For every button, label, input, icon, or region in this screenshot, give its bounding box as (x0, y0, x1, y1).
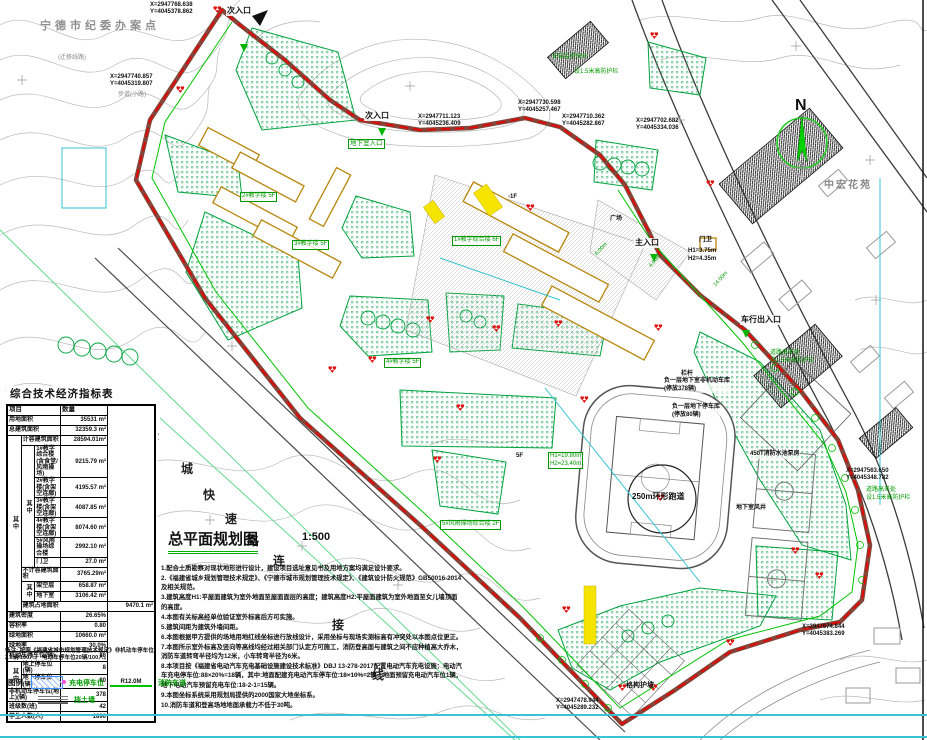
table-row-value: 658.87 m² (61, 581, 108, 591)
coordinate-6: X=2947702.682 Y=4045334.036 (636, 118, 679, 132)
main-entrance-label: 主入口 (634, 238, 660, 248)
table-row-value: 3765.29m² (61, 568, 108, 582)
building-label-3: 3#教学楼 5F (292, 240, 329, 250)
legend-caption: 图例 (8, 677, 23, 688)
vehicle-entrance-label: 车行出入口 (740, 315, 782, 325)
fire-tank-label: 450T消防水池泵房 (750, 451, 800, 459)
coordinate-3: X=2947711.123 Y=4045236.409 (418, 114, 461, 128)
table-row-label: 1#教学综合楼(含食堂/风雨操场) (35, 446, 61, 478)
secondary-entrance-label-west: 次入口 (364, 111, 390, 121)
north-letter: N (795, 96, 807, 116)
car-garage-label: 负一层地下停车库 (停放80辆) (672, 404, 720, 419)
sheet-frame-line-2 (0, 736, 927, 738)
charging-parking-label: 充电停车位 (69, 678, 104, 688)
building-height-label: H1=19.80m H2=23.40m (548, 452, 583, 469)
table-row-value: 28594.01m² (61, 436, 108, 446)
table-row-label: 5#风雨操场综合楼 (35, 538, 61, 558)
bicycle-garage-label: 负一层地下室非机动车库 (停放378辆) (664, 378, 730, 393)
basement-vent-label: 地下室风井 (736, 505, 766, 513)
gatehouse-heights: H1=3.75m H2=4.35m (688, 248, 716, 263)
coordinate-9: X=2947674.844 Y=4045383.269 (802, 624, 845, 638)
drawing-scale: 1:500 (302, 531, 330, 543)
estate-name-label: 中宏花苑 (824, 180, 872, 193)
table-row-label: 门卫 (35, 558, 61, 568)
coordinate-1: X=2947768.638 Y=4045378.862 (150, 2, 193, 16)
table-row-value: 3106.42 m² (61, 591, 108, 601)
note-line: 5.建筑间距为建筑外墙间距。 (161, 623, 463, 632)
table-row-value: 0.80 (61, 621, 108, 631)
table-row-label: 绿地面积 (7, 631, 61, 641)
table-remark: 备注: 按照《福建省城市规划管理技术规定》非机动车停车位2.0辆/100人。 电… (5, 648, 157, 663)
guardrail-note-3: 道路高差处 设1.5米高防护栏 (866, 487, 910, 502)
village-road-southeast (700, 650, 880, 740)
indicator-table-title: 综合技术经济指标表 (10, 386, 158, 401)
table-row-value: 9215.79 m² (61, 446, 108, 478)
slope-protection-label: 格构护坡 (626, 682, 654, 691)
table-row-label: 不计容建筑面积 (21, 568, 60, 582)
coordinate-5: X=2947710.362 Y=4045282.867 (562, 114, 605, 128)
legend: 图例 充电停车位 R12.0M 消防车道 挡土墙 (8, 676, 298, 711)
secondary-entrance-label-north: 次入口 (226, 6, 252, 16)
note-line: 2.《福建省城乡规划管理技术规定》、《宁德市城市规划管理技术规定》、《建筑设计防… (161, 574, 463, 592)
merge-cell-qizhong: 其中 (7, 436, 21, 612)
coordinate-4: X=2947730.598 Y=4045257.467 (518, 100, 561, 114)
table-row-value: 8074.60 m² (61, 518, 108, 538)
table-row-value: 32359.3 m² (61, 426, 108, 436)
note-line: 7.本图所示室外标高及竖向等高线均经过相关部门认定方可施工，消防登高面与建筑之间… (161, 643, 463, 661)
table-row-label: 3#教学楼(含架空连廊) (35, 498, 61, 518)
roadname-char-2: 快 (203, 486, 215, 503)
plaza-label: 广场 (610, 216, 622, 224)
note-line: 4.本图有关标高经单位验证室外标高后方可实施。 (161, 613, 463, 622)
fire-lane-label: 消防车道 (158, 678, 186, 688)
basement-entrance-label: 地下室入口 (348, 139, 385, 149)
table-row-value: 4087.85 m² (61, 498, 108, 518)
running-track-label: 250m环形跑道 (632, 492, 684, 502)
note-line: 1.配合土质勘察对现状地形进行设计，建设项目选址意见书及用地方案均满足设计要求。 (161, 564, 463, 573)
retaining-wall-symbol (38, 696, 68, 704)
table-row-value: 27.0 m² (61, 558, 108, 568)
sheet-frame-line-1 (0, 714, 927, 716)
table-row-label: 2#教学楼(含架空连廊) (35, 478, 61, 498)
table-header-item: 项目 (7, 405, 61, 416)
building-label-5: 5#风雨操场综合楼 2F (440, 520, 501, 530)
coordinate-7: X=2947563.650 Y=4045348.782 (846, 468, 889, 482)
adjacent-site-label: 宁德市纪委办案点 (40, 20, 160, 34)
table-row-value: 35531 m² (61, 416, 108, 426)
floor-5f-label: 5F (516, 453, 523, 461)
charging-parking-symbol (31, 676, 63, 689)
guardrail-note-2: 道路高差处 设1.5米高防护栏 (770, 350, 814, 365)
gatehouse-label: 门卫 (699, 236, 712, 244)
table-row-label: 容积率 (7, 621, 61, 631)
table-row-label: 建筑占地面积 (21, 601, 107, 611)
table-row-label: 计容建筑面积 (21, 436, 60, 446)
table-row-label: 地下室 (35, 591, 61, 601)
table-header-qty: 数量 (61, 405, 108, 416)
table-row-value: 9470.1 m² (108, 601, 156, 611)
building-label-1: 1#教学综合楼 6F (452, 236, 501, 246)
floor-minus1f-label: -1F (508, 194, 517, 202)
site-plan-sheet: 宁德市纪委办案点 (迁移线路) 步道(小路) 次入口 次入口 主入口 门卫 H1… (0, 0, 927, 740)
table-row-value: 10660.0 m² (61, 631, 108, 641)
drawing-title: 总平面规划图 (168, 528, 258, 554)
table-row-label: 建筑密度 (7, 611, 61, 621)
railing-label: 栏杆 (681, 371, 693, 379)
relocation-note: (迁移线路) (58, 55, 86, 63)
building-label-2: 2#教学楼 5F (240, 192, 277, 202)
merge-cell-qizhong: 其中 (21, 581, 35, 601)
indicator-table-panel: 综合技术经济指标表 项目 数量 用地面积35531 m² 总建筑面积32359.… (6, 386, 158, 723)
retaining-wall-label: 挡土墙 (74, 695, 95, 705)
note-line: 3.建筑高度H1:平屋面建筑为室外地面至屋面面层的高度；建筑高度H2:平屋面建筑… (161, 593, 463, 611)
table-row-label: 架空层 (35, 581, 61, 591)
table-row-value: 4195.57 m² (61, 478, 108, 498)
footpath-note: 步道(小路) (118, 92, 146, 100)
note-line: 6.本图根据甲方提供的场地用地红线坐标进行放线设计，采用坐标与现场实测标高有冲突… (161, 633, 463, 642)
building-label-4: 4#教学楼 5F (384, 358, 421, 368)
table-row-label: 4#教学楼(含架空连廊) (35, 518, 61, 538)
table-row-label: 用地面积 (7, 416, 61, 426)
coordinate-8: X=2947478.944 Y=4045289.232 (556, 698, 599, 712)
roadname-char-3: 速 (225, 510, 237, 527)
coordinate-2: X=2947740.857 Y=4045319.807 (110, 74, 153, 88)
table-row-value: 2992.10 m² (61, 538, 108, 558)
roadname-char-1: 城 (181, 460, 193, 477)
table-row-label: 地上停车位(辆) (21, 661, 60, 675)
table-row-label: 总建筑面积 (7, 426, 61, 436)
merge-cell-qizhong: 其中 (21, 446, 35, 568)
camera-note: 安装监控探头 (552, 54, 588, 62)
table-row-value: 26.65% (61, 611, 108, 621)
table-row-value: 8 (61, 661, 108, 675)
guardrail-note-1: 设1.5米高防护栏 (574, 69, 618, 77)
fire-lane-symbol: R12.0M (110, 679, 152, 687)
